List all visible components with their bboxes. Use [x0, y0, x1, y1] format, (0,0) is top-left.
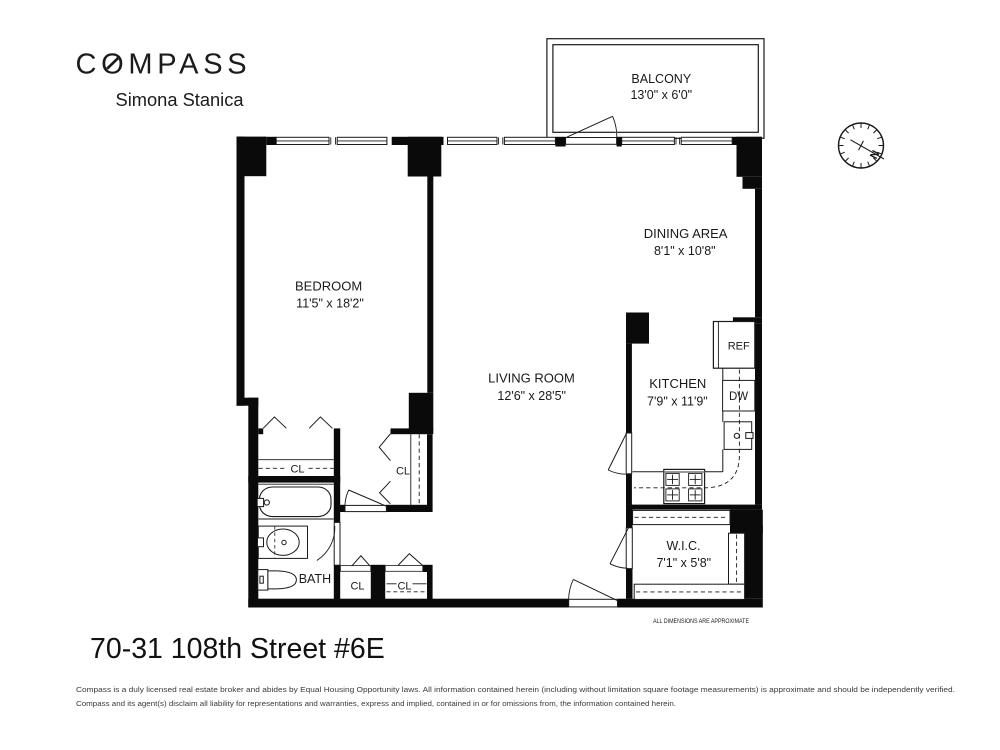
svg-text:11'5" x 18'2": 11'5" x 18'2" — [296, 296, 364, 310]
svg-text:Compass is a duly licensed rea: Compass is a duly licensed real estate b… — [76, 685, 955, 694]
svg-text:Simona Stanica: Simona Stanica — [116, 89, 245, 110]
svg-text:BATH: BATH — [299, 572, 331, 586]
svg-text:CL: CL — [397, 580, 411, 592]
svg-text:REF: REF — [728, 340, 750, 352]
svg-text:12'6" x 28'5": 12'6" x 28'5" — [497, 389, 566, 403]
svg-text:W.I.C.: W.I.C. — [666, 539, 700, 553]
svg-text:ALL DIMENSIONS ARE APPROXIMATE: ALL DIMENSIONS ARE APPROXIMATE — [653, 618, 749, 625]
svg-text:BALCONY: BALCONY — [631, 72, 691, 86]
svg-text:CL: CL — [396, 465, 410, 477]
svg-text:DINING AREA: DINING AREA — [644, 226, 728, 241]
svg-text:LIVING ROOM: LIVING ROOM — [488, 371, 575, 386]
svg-text:BEDROOM: BEDROOM — [295, 279, 362, 294]
svg-text:7'1" x 5'8": 7'1" x 5'8" — [656, 556, 711, 570]
svg-text:COMPASS: COMPASS — [76, 49, 252, 81]
svg-text:DW: DW — [729, 391, 748, 403]
svg-text:Compass and its agent(s) discl: Compass and its agent(s) disclaim all li… — [76, 699, 676, 708]
svg-text:KITCHEN: KITCHEN — [649, 376, 706, 391]
svg-text:CL: CL — [290, 463, 304, 475]
svg-text:8'1" x 10'8": 8'1" x 10'8" — [654, 244, 716, 258]
svg-text:13'0" x 6'0": 13'0" x 6'0" — [630, 88, 692, 102]
svg-text:7'9" x 11'9": 7'9" x 11'9" — [647, 395, 708, 409]
svg-text:70-31 108th Street #6E: 70-31 108th Street #6E — [90, 633, 385, 665]
svg-text:CL: CL — [350, 580, 364, 592]
